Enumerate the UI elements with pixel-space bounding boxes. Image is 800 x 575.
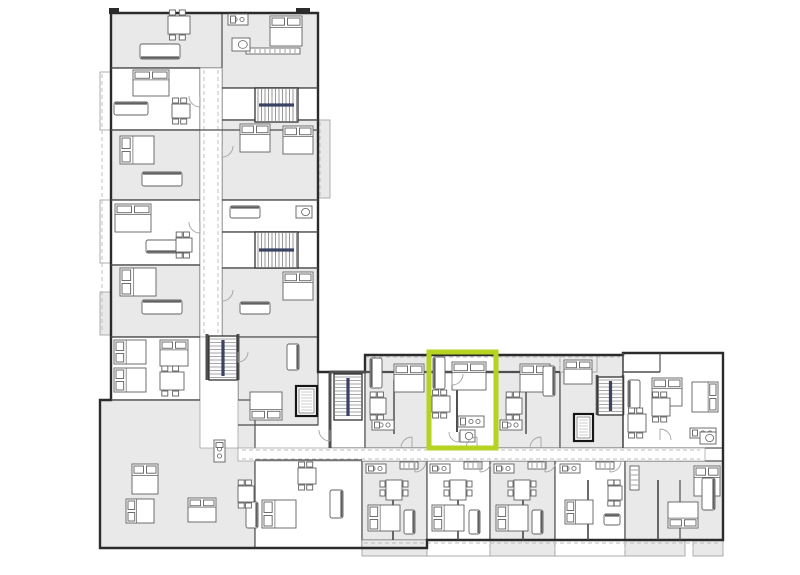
sofa <box>532 510 543 534</box>
bed <box>496 505 528 531</box>
sofa <box>142 300 182 314</box>
floorplan-svg <box>0 0 800 575</box>
sofa <box>142 172 182 186</box>
bed <box>188 498 216 522</box>
kitchen-counter <box>228 14 248 25</box>
bed <box>565 500 593 524</box>
wardrobe <box>528 462 546 469</box>
bed <box>132 464 158 494</box>
bed <box>668 502 698 528</box>
bed <box>432 505 464 531</box>
dining-table <box>238 480 254 508</box>
bed <box>692 382 718 412</box>
bed <box>115 204 151 232</box>
bed <box>133 70 169 96</box>
bed <box>126 499 154 523</box>
dining-table <box>608 480 622 506</box>
bed <box>120 268 156 296</box>
sofa <box>433 357 445 389</box>
wardrobe <box>630 466 639 490</box>
sofa <box>604 514 620 525</box>
dining-table <box>506 392 522 420</box>
sofa <box>240 302 270 314</box>
sofa <box>230 206 260 218</box>
bed <box>368 505 400 531</box>
kitchen-counter <box>494 464 514 473</box>
bathroom-fixture <box>460 430 475 442</box>
balcony <box>625 540 685 556</box>
bed <box>283 272 313 300</box>
dining-table <box>370 392 386 420</box>
kitchen-counter <box>500 420 522 430</box>
bed <box>114 368 146 392</box>
bed <box>452 362 486 390</box>
stairwell <box>598 377 623 415</box>
bathroom-fixture <box>232 38 250 51</box>
balcony <box>100 72 111 130</box>
bed <box>270 16 302 46</box>
balcony <box>427 540 490 556</box>
wardrobe <box>246 48 300 54</box>
sofa <box>287 344 299 370</box>
stairwell <box>334 374 362 420</box>
dining-table <box>176 232 192 258</box>
sofa <box>370 358 382 388</box>
bed <box>160 340 188 366</box>
sofa <box>330 490 343 518</box>
floorplan-stage <box>0 0 800 575</box>
bed <box>114 340 146 364</box>
bed <box>394 364 424 392</box>
bed <box>240 124 270 152</box>
kitchen-counter <box>214 440 225 462</box>
stairwell <box>255 88 298 122</box>
sofa <box>469 510 480 534</box>
kitchen-counter <box>560 464 580 473</box>
kitchen-counter <box>366 464 386 473</box>
kitchen-counter <box>458 416 484 427</box>
elevator <box>296 386 317 416</box>
sofa <box>543 366 555 396</box>
balcony <box>693 540 723 556</box>
kitchen-counter <box>372 420 394 430</box>
bathroom-fixture <box>296 206 312 218</box>
bed <box>283 126 313 154</box>
bed <box>262 500 296 528</box>
sofa <box>114 102 148 115</box>
wardrobe <box>596 462 614 469</box>
balcony <box>555 540 625 556</box>
corridor <box>200 68 222 337</box>
sofa <box>140 44 180 59</box>
elevator <box>574 414 593 441</box>
sofa <box>702 478 715 510</box>
balcony <box>490 540 555 556</box>
door-swing <box>319 430 330 441</box>
bed <box>120 136 154 164</box>
bed <box>564 360 592 384</box>
stairwell <box>255 232 298 268</box>
stairwell <box>209 336 237 380</box>
sofa <box>404 510 415 534</box>
bed <box>250 392 282 420</box>
bathroom-fixture <box>700 432 716 444</box>
wardrobe <box>464 462 482 469</box>
kitchen-counter <box>430 464 450 473</box>
sofa <box>628 380 640 408</box>
